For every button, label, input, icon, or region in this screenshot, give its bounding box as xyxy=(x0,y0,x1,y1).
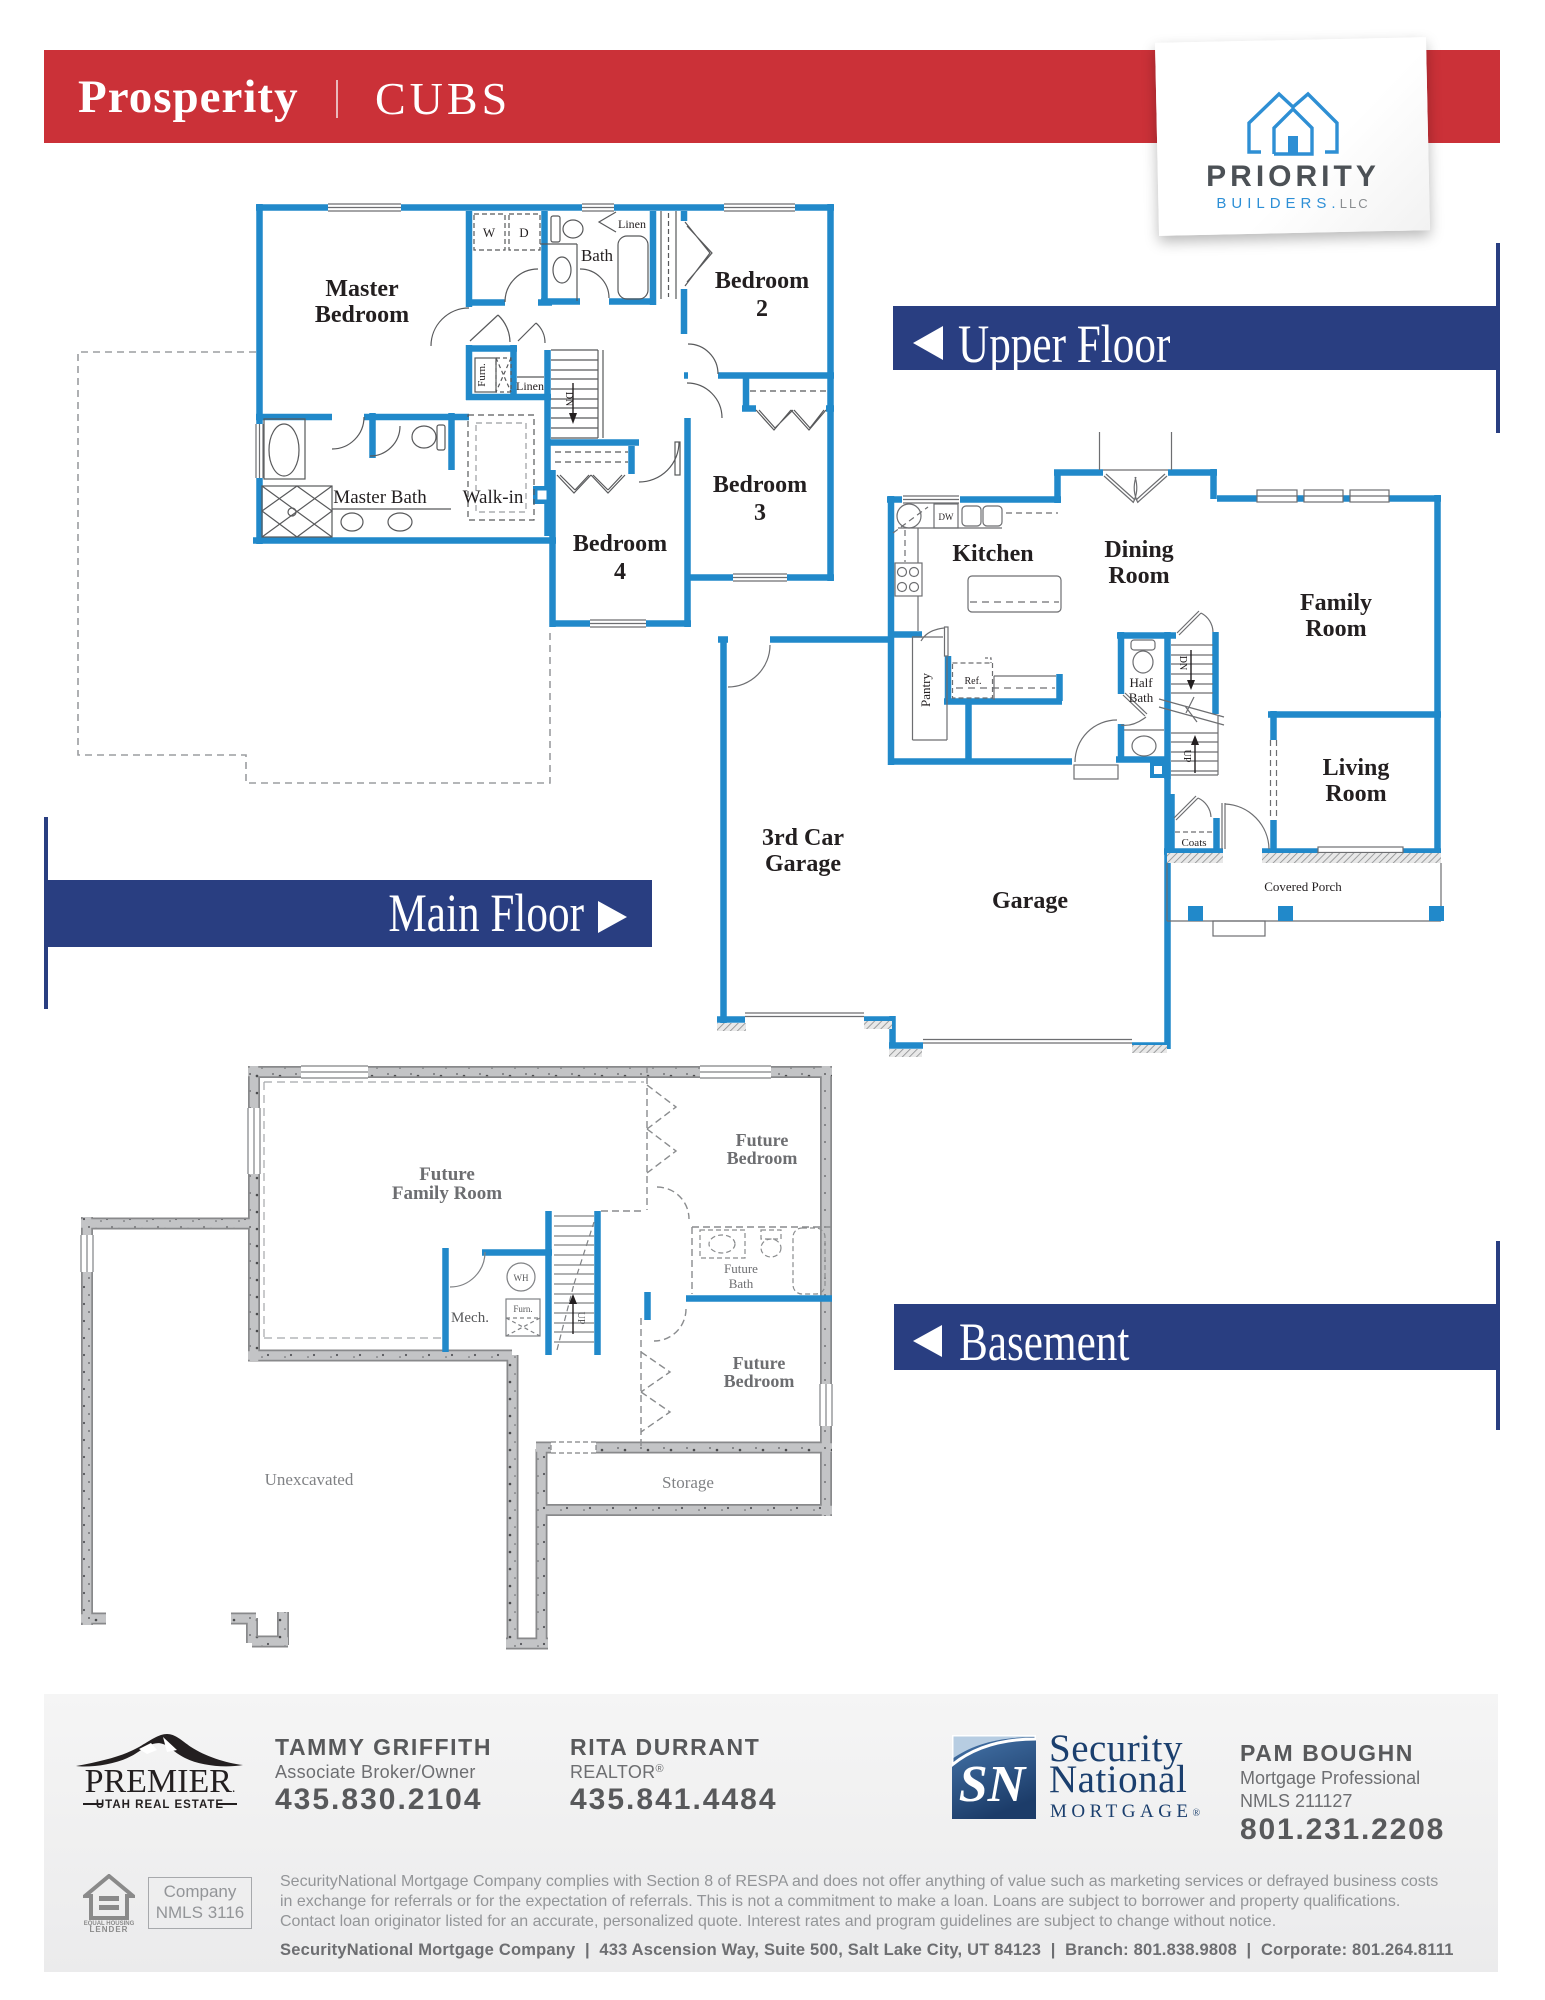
svg-text:UTAH REAL ESTATE: UTAH REAL ESTATE xyxy=(96,1799,224,1811)
svg-text:Bedroom: Bedroom xyxy=(727,1148,798,1168)
svg-text:D: D xyxy=(519,225,528,240)
svg-text:Bath: Bath xyxy=(729,1276,754,1291)
svg-text:Linen: Linen xyxy=(618,217,646,231)
svg-text:Garage: Garage xyxy=(992,888,1068,914)
svg-text:Future: Future xyxy=(736,1130,789,1150)
svg-text:3rd Car: 3rd Car xyxy=(762,825,844,851)
svg-text:Future: Future xyxy=(419,1164,475,1185)
svg-text:UP: UP xyxy=(575,1312,586,1325)
svg-text:4: 4 xyxy=(614,559,626,585)
svg-text:Storage: Storage xyxy=(662,1473,714,1492)
svg-text:Family: Family xyxy=(1300,590,1372,616)
svg-text:Garage: Garage xyxy=(765,851,841,877)
svg-text:Covered Porch: Covered Porch xyxy=(1264,879,1342,894)
svg-text:3: 3 xyxy=(754,500,766,526)
svg-text:WH: WH xyxy=(514,1273,529,1283)
svg-text:Room: Room xyxy=(1108,563,1169,589)
svg-text:Bath: Bath xyxy=(1129,690,1154,705)
svg-text:Room: Room xyxy=(1325,781,1386,807)
svg-text:Bedroom: Bedroom xyxy=(713,472,807,498)
svg-text:Furn.: Furn. xyxy=(513,1304,532,1314)
svg-text:DN: DN xyxy=(1177,656,1188,670)
svg-text:Living: Living xyxy=(1323,755,1390,781)
svg-text:Unexcavated: Unexcavated xyxy=(265,1470,354,1489)
svg-text:Master Bath: Master Bath xyxy=(333,487,427,508)
svg-text:Ref.: Ref. xyxy=(965,676,982,687)
svg-text:DN: DN xyxy=(563,392,574,406)
svg-text:Future: Future xyxy=(724,1261,758,1276)
svg-text:Master: Master xyxy=(325,276,399,302)
svg-text:Half: Half xyxy=(1129,675,1153,690)
svg-text:PREMIER.: PREMIER. xyxy=(85,1763,236,1800)
svg-text:Bedroom: Bedroom xyxy=(724,1371,795,1391)
svg-text:Coats: Coats xyxy=(1181,837,1206,849)
svg-text:Bedroom: Bedroom xyxy=(715,268,809,294)
svg-text:Walk-in: Walk-in xyxy=(463,487,524,508)
svg-text:2: 2 xyxy=(756,296,768,322)
svg-text:LENDER: LENDER xyxy=(90,1925,129,1932)
svg-text:Furn.: Furn. xyxy=(476,363,488,387)
svg-text:Mech.: Mech. xyxy=(451,1310,489,1326)
svg-text:Bedroom: Bedroom xyxy=(573,531,667,557)
svg-text:Linen: Linen xyxy=(516,379,544,393)
svg-text:Pantry: Pantry xyxy=(918,673,933,707)
svg-text:Bedroom: Bedroom xyxy=(315,302,409,328)
svg-text:UP: UP xyxy=(1181,750,1192,763)
svg-text:Bath: Bath xyxy=(581,246,614,265)
svg-text:Future: Future xyxy=(733,1353,786,1373)
svg-text:Room: Room xyxy=(1305,616,1366,642)
svg-text:Family Room: Family Room xyxy=(392,1183,502,1204)
svg-text:Dining: Dining xyxy=(1104,537,1173,563)
svg-text:SN: SN xyxy=(959,1756,1028,1813)
svg-text:DW: DW xyxy=(939,512,954,522)
svg-text:Kitchen: Kitchen xyxy=(952,541,1033,567)
svg-text:W: W xyxy=(483,225,496,240)
